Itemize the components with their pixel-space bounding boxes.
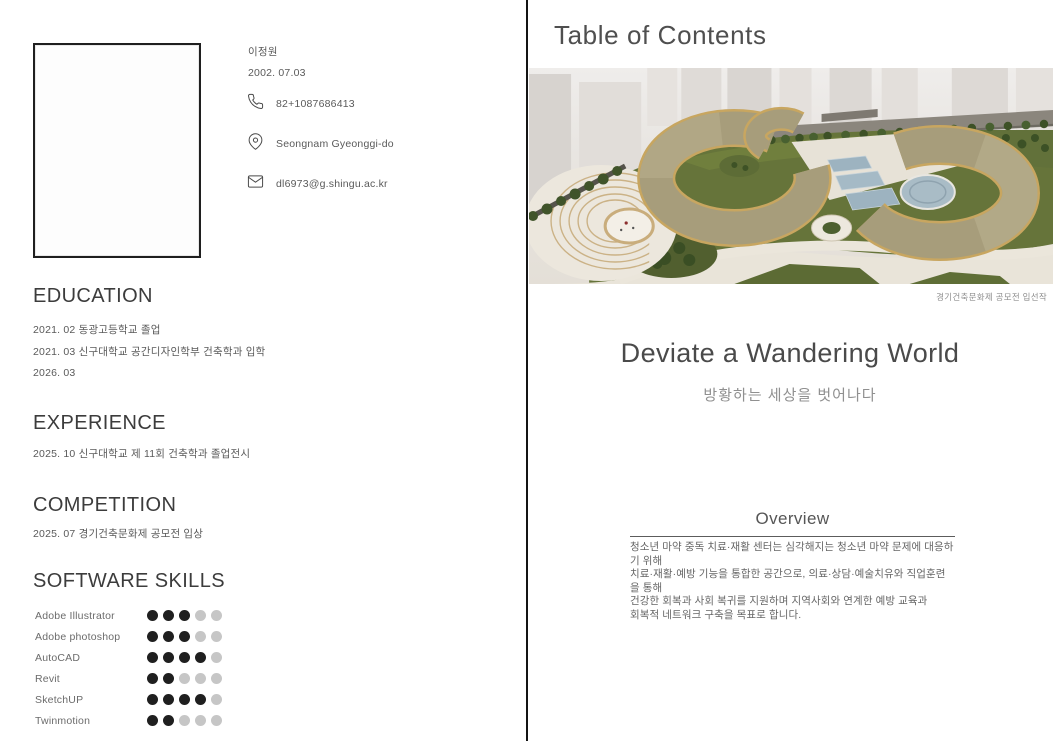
skill-level-dots	[147, 610, 222, 621]
skill-dot-filled	[163, 715, 174, 726]
contact-location-row: Seongnam Gyeonggi-do	[247, 133, 394, 155]
skill-dot-empty	[211, 610, 222, 621]
skill-dot-filled	[147, 673, 158, 684]
skill-dot-filled	[147, 631, 158, 642]
skill-dot-empty	[179, 715, 190, 726]
skill-dot-filled	[179, 652, 190, 663]
skill-dot-empty	[211, 673, 222, 684]
skill-dot-empty	[211, 631, 222, 642]
resume-entry: 2025. 07 경기건축문화제 공모전 입상	[33, 524, 203, 546]
phone-number: 82+1087686413	[276, 98, 355, 110]
architecture-render	[529, 68, 1053, 284]
skill-level-dots	[147, 715, 222, 726]
skill-dot-empty	[211, 652, 222, 663]
skill-name: Twinmotion	[35, 715, 90, 727]
resume-entry: 2025. 10 신구대학교 제 11회 건축학과 졸업전시	[33, 444, 250, 466]
overview-body: 청소년 마약 중독 치료·재활 센터는 심각해지는 청소년 마약 문제에 대응하…	[630, 541, 955, 622]
profile-name: 이정원	[248, 44, 278, 59]
skill-dot-filled	[147, 694, 158, 705]
skill-name: Adobe Illustrator	[35, 610, 115, 622]
resume-page: 이정원 2002. 07.03 82+1087686413 Seongnam G…	[0, 0, 526, 741]
resume-entry: 2021. 02 동광고등학교 졸업	[33, 320, 265, 342]
profile-birthdate: 2002. 07.03	[248, 67, 306, 79]
skill-name: SketchUP	[35, 694, 83, 706]
phone-icon	[247, 93, 264, 115]
skill-dot-filled	[163, 610, 174, 621]
competition-heading: COMPETITION	[33, 494, 176, 517]
resume-entry: 2026. 03	[33, 363, 265, 385]
skill-dot-filled	[163, 631, 174, 642]
portfolio-spread: 이정원 2002. 07.03 82+1087686413 Seongnam G…	[0, 0, 1053, 741]
skill-row: AutoCAD	[35, 647, 245, 668]
skill-dot-empty	[195, 610, 206, 621]
skill-name: Revit	[35, 673, 60, 685]
mail-icon	[247, 173, 264, 195]
competition-entries: 2025. 07 경기건축문화제 공모전 입상	[33, 524, 203, 546]
skill-dot-empty	[195, 715, 206, 726]
toc-header: Table of Contents	[554, 20, 767, 51]
render-caption: 경기건축문화제 공모전 입선작	[936, 291, 1047, 303]
skill-row: Adobe Illustrator	[35, 605, 245, 626]
email-address: dl6973@g.shingu.ac.kr	[276, 178, 388, 190]
education-heading: EDUCATION	[33, 285, 153, 308]
skill-level-dots	[147, 631, 222, 642]
skill-level-dots	[147, 652, 222, 663]
skill-dot-filled	[147, 652, 158, 663]
overview-heading: Overview	[630, 509, 955, 529]
location-text: Seongnam Gyeonggi-do	[276, 138, 394, 150]
skill-dot-empty	[211, 694, 222, 705]
skill-dot-filled	[179, 610, 190, 621]
skill-row: Revit	[35, 668, 245, 689]
skill-dot-filled	[195, 652, 206, 663]
skill-name: AutoCAD	[35, 652, 80, 664]
project-subtitle: 방황하는 세상을 벗어나다	[527, 384, 1053, 405]
experience-entries: 2025. 10 신구대학교 제 11회 건축학과 졸업전시	[33, 444, 250, 466]
skill-level-dots	[147, 694, 222, 705]
project-title: Deviate a Wandering World	[527, 338, 1053, 369]
education-entries: 2021. 02 동광고등학교 졸업2021. 03 신구대학교 공간디자인학부…	[33, 320, 265, 385]
toc-page: Table of Contents	[527, 0, 1053, 741]
skill-dot-empty	[195, 673, 206, 684]
contact-email-row: dl6973@g.shingu.ac.kr	[247, 173, 388, 195]
skill-dot-empty	[179, 673, 190, 684]
skill-dot-empty	[211, 715, 222, 726]
skill-row: SketchUP	[35, 689, 245, 710]
skill-dot-empty	[195, 631, 206, 642]
skill-dot-filled	[179, 694, 190, 705]
location-pin-icon	[247, 133, 264, 155]
skill-dot-filled	[147, 715, 158, 726]
skill-level-dots	[147, 673, 222, 684]
software-skills-heading: SOFTWARE SKILLS	[33, 570, 225, 593]
overview-section: Overview 청소년 마약 중독 치료·재활 센터는 심각해지는 청소년 마…	[630, 509, 955, 622]
overview-divider	[630, 536, 955, 537]
photo-placeholder	[33, 43, 201, 258]
software-skills-list: Adobe IllustratorAdobe photoshopAutoCADR…	[35, 605, 245, 731]
architecture-render-graphic	[529, 68, 1053, 284]
skill-row: Adobe photoshop	[35, 626, 245, 647]
skill-row: Twinmotion	[35, 710, 245, 731]
skill-dot-filled	[179, 631, 190, 642]
skill-dot-filled	[147, 610, 158, 621]
experience-heading: EXPERIENCE	[33, 412, 166, 435]
skill-dot-filled	[163, 673, 174, 684]
resume-entry: 2021. 03 신구대학교 공간디자인학부 건축학과 입학	[33, 342, 265, 364]
skill-dot-filled	[163, 694, 174, 705]
contact-phone-row: 82+1087686413	[247, 93, 355, 115]
skill-dot-filled	[195, 694, 206, 705]
skill-name: Adobe photoshop	[35, 631, 120, 643]
skill-dot-filled	[163, 652, 174, 663]
